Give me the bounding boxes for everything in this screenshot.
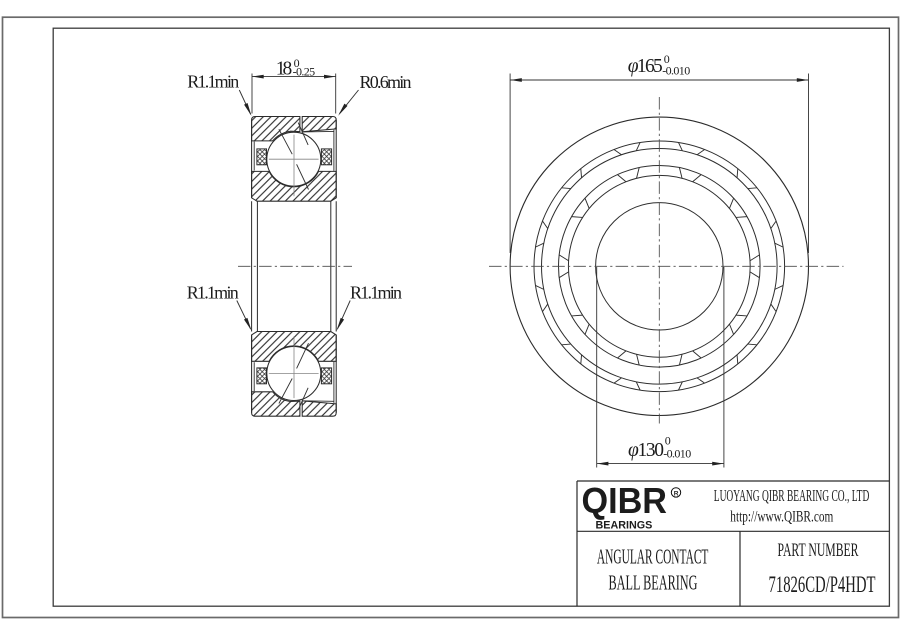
svg-text:http://www.QIBR.com: http://www.QIBR.com xyxy=(730,508,833,525)
svg-text:R1.1min: R1.1min xyxy=(187,282,239,302)
svg-text:18: 18 xyxy=(276,58,293,79)
svg-text:71826CD/P4HDT: 71826CD/P4HDT xyxy=(769,572,876,597)
svg-text:QIBR: QIBR xyxy=(582,480,668,521)
svg-text:φ130: φ130 xyxy=(628,440,664,461)
svg-text:φ165: φ165 xyxy=(628,56,663,77)
svg-text:-0.010: -0.010 xyxy=(663,447,691,461)
svg-text:BEARINGS: BEARINGS xyxy=(596,520,653,532)
svg-text:R1.1min: R1.1min xyxy=(350,282,402,302)
svg-text:LUOYANG QIBR BEARING CO., LTD: LUOYANG QIBR BEARING CO., LTD xyxy=(714,486,870,505)
svg-text:0: 0 xyxy=(665,434,671,448)
svg-text:-0.010: -0.010 xyxy=(662,64,690,78)
svg-text:R0.6min: R0.6min xyxy=(360,72,412,92)
svg-text:ANGULAR CONTACT: ANGULAR CONTACT xyxy=(597,544,709,568)
svg-text:BALL BEARING: BALL BEARING xyxy=(609,571,698,595)
svg-text:R1.1min: R1.1min xyxy=(187,72,239,92)
svg-text:-0.25: -0.25 xyxy=(293,65,316,79)
svg-text:PART NUMBER: PART NUMBER xyxy=(778,540,859,561)
svg-text:R: R xyxy=(674,490,679,497)
